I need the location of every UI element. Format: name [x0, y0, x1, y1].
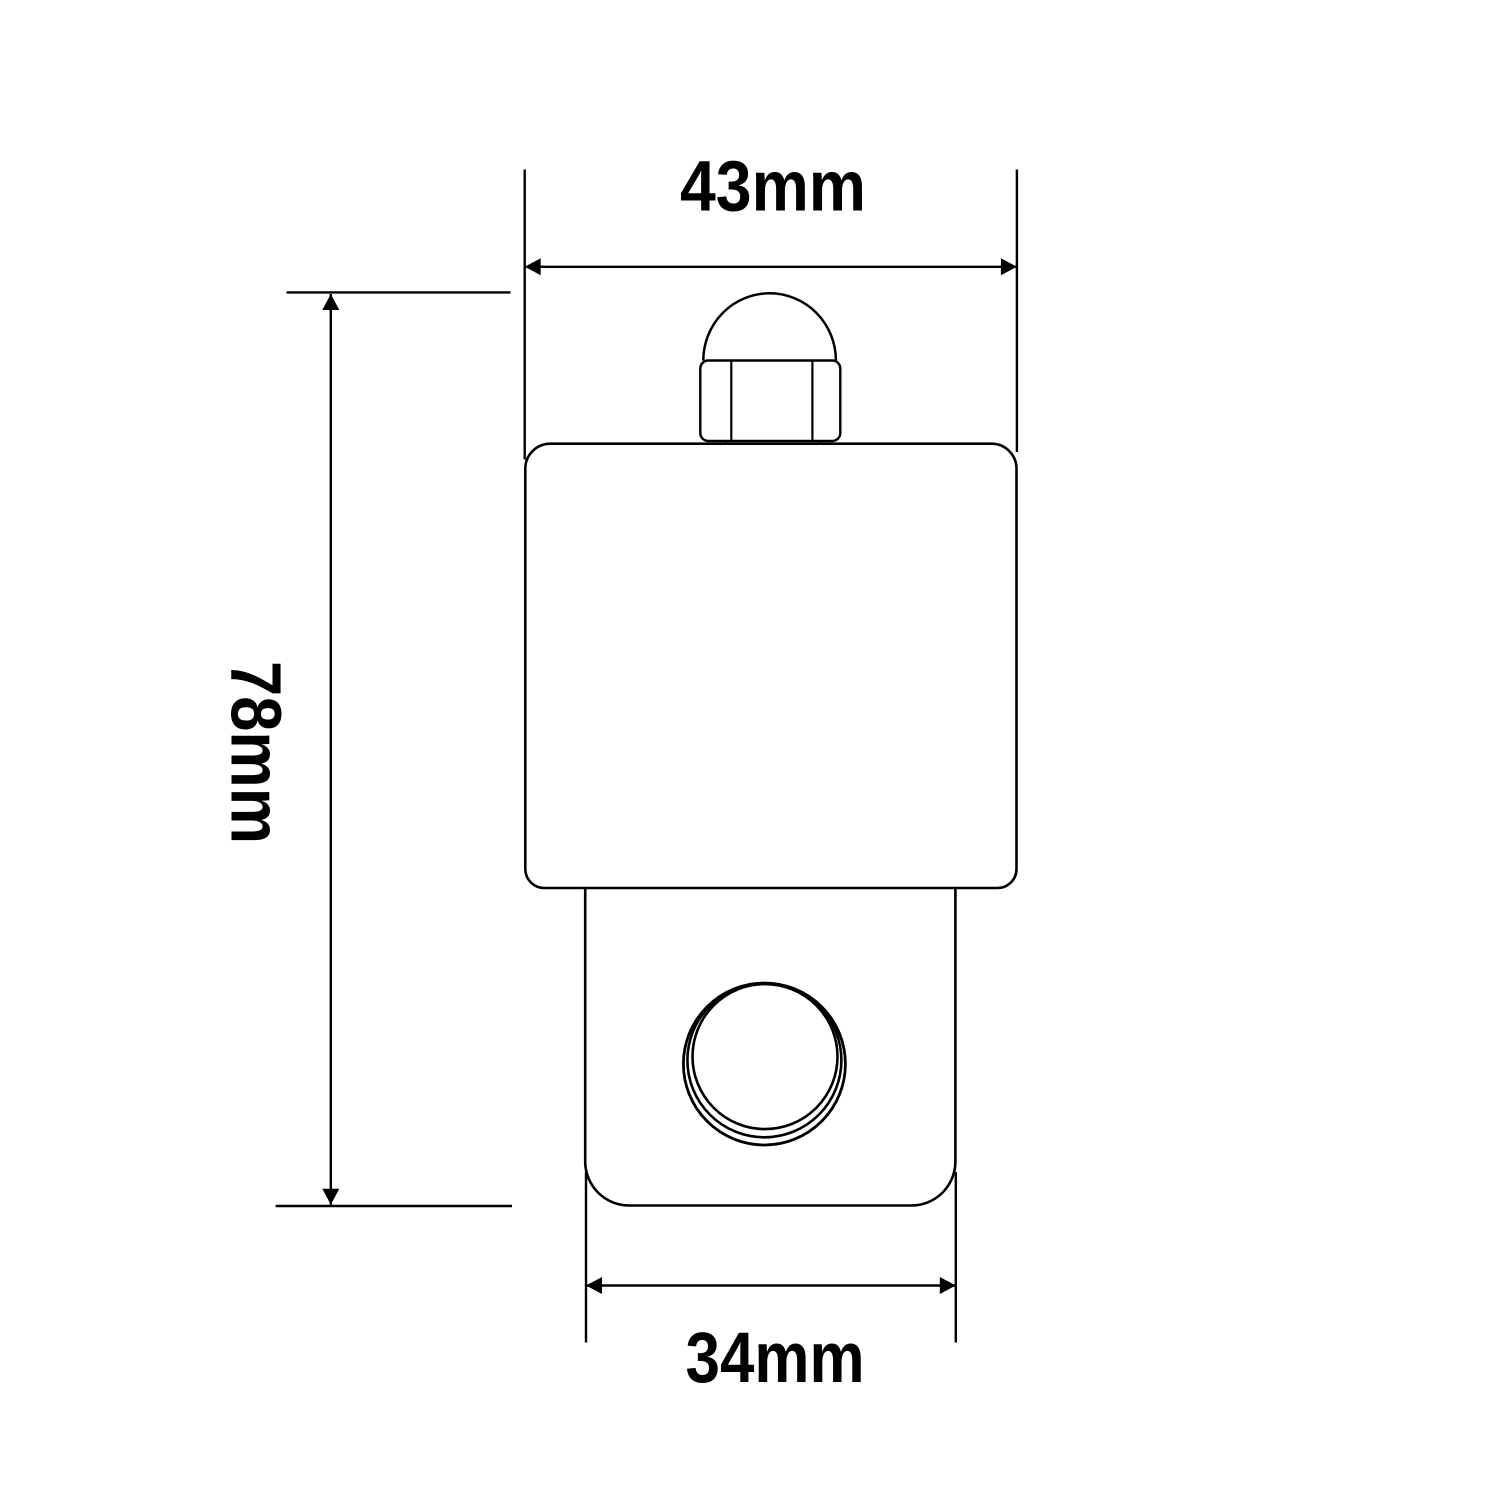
svg-text:34mm: 34mm: [686, 1319, 865, 1398]
svg-text:43mm: 43mm: [680, 148, 866, 227]
svg-text:78mm: 78mm: [216, 661, 295, 844]
